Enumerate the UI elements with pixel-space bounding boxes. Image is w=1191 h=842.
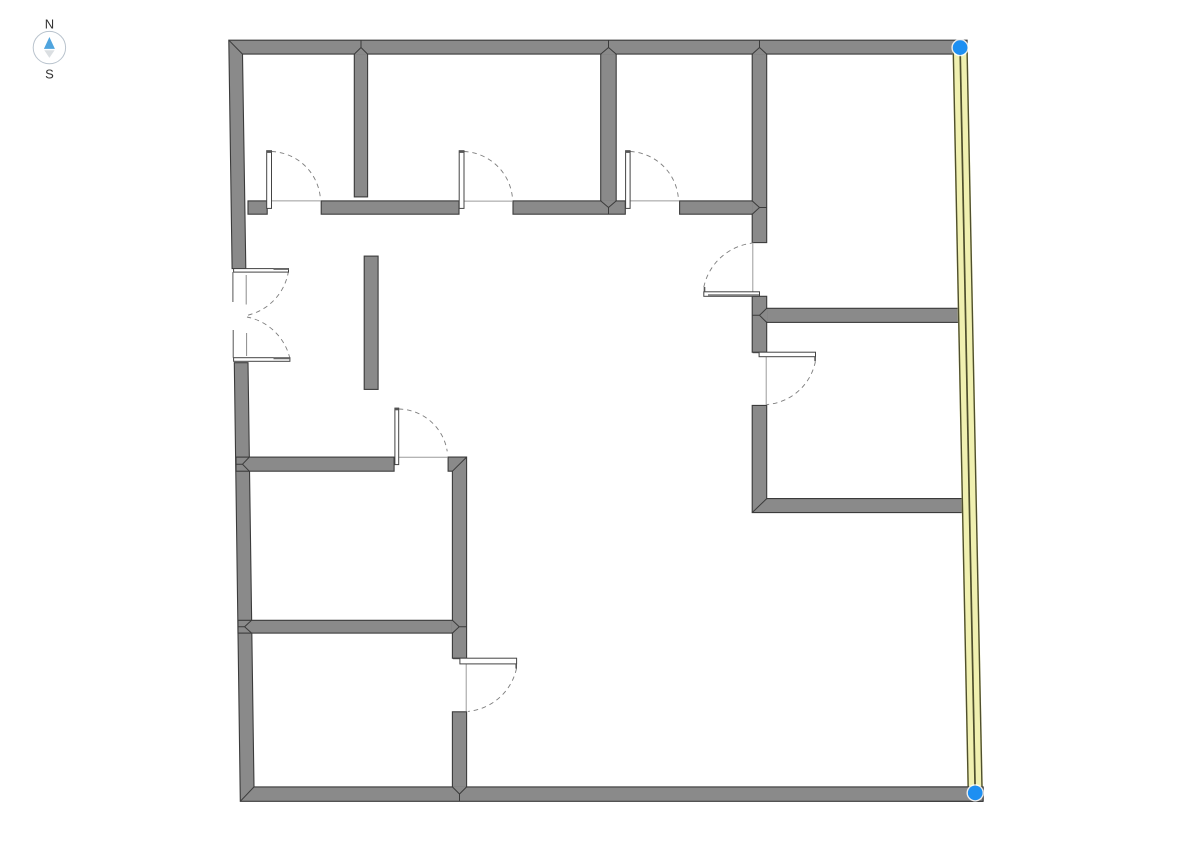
svg-text:S: S xyxy=(45,67,54,82)
svg-text:N: N xyxy=(45,17,54,32)
